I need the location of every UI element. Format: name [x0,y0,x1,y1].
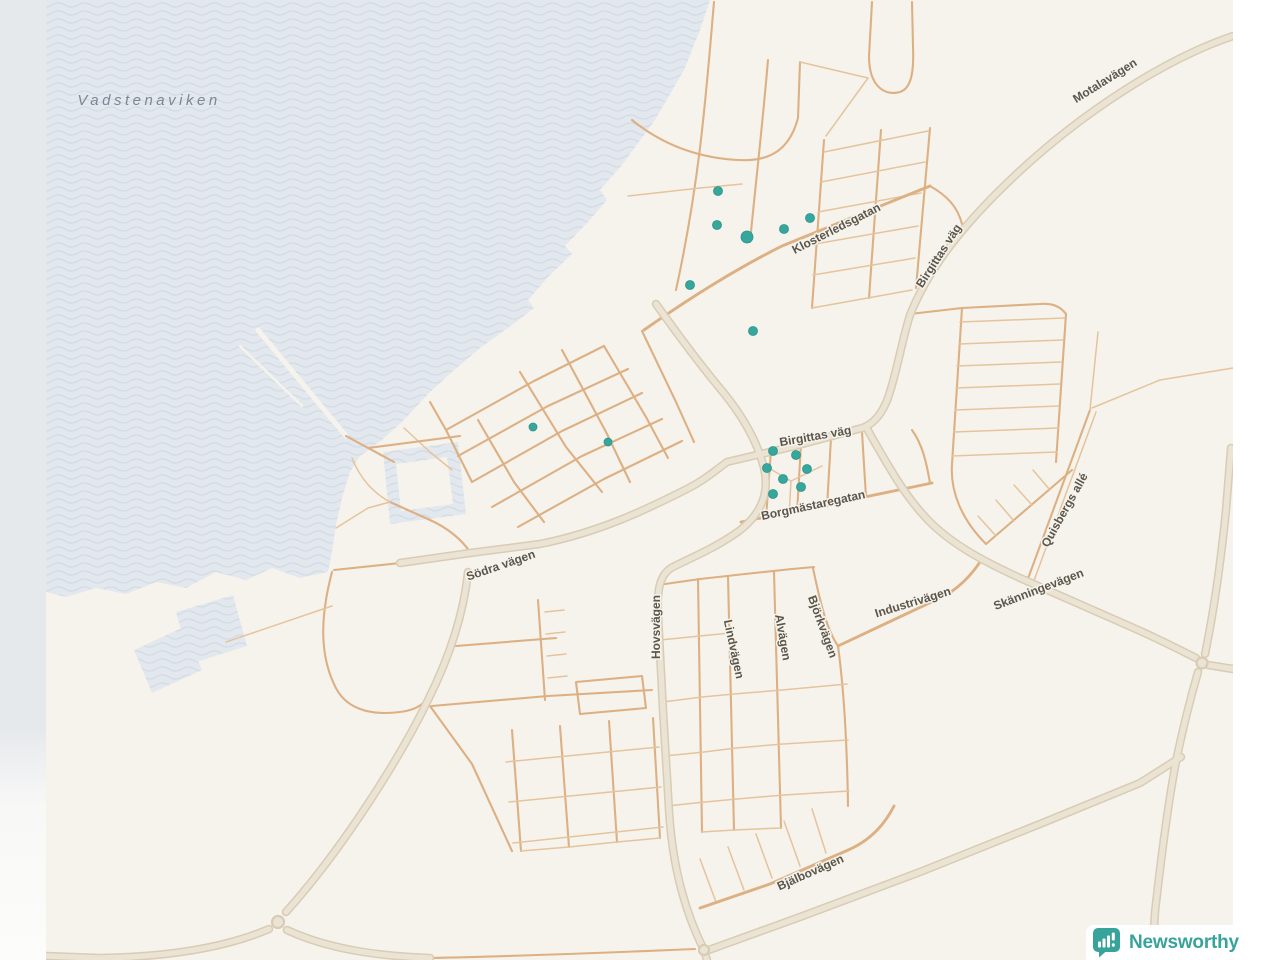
map-marker[interactable] [686,281,695,290]
roundabout-east [1197,658,1208,669]
map-edge-left [0,0,46,960]
map-marker[interactable] [741,231,753,243]
map-marker[interactable] [797,483,806,492]
map-marker[interactable] [803,465,812,474]
map-marker[interactable] [769,447,778,456]
map-marker[interactable] [529,423,537,431]
map-edge-right [1233,0,1280,960]
map-marker[interactable] [780,225,789,234]
map-marker[interactable] [792,451,801,460]
castle-island [396,457,453,511]
map-marker[interactable] [604,438,612,446]
map-marker[interactable] [763,464,772,473]
map-marker[interactable] [714,187,723,196]
map-marker[interactable] [806,214,815,223]
map-canvas[interactable]: Vadstenaviken Klosterledsgatan Motalaväg… [0,0,1280,960]
map-marker[interactable] [769,490,778,499]
water-body-label: Vadstenaviken [77,92,220,109]
attribution-card[interactable]: Newsworthy [1086,925,1280,960]
newsworthy-logo-icon [1092,927,1122,958]
map-screenshot: Vadstenaviken Klosterledsgatan Motalaväg… [0,0,1280,960]
map-marker[interactable] [779,475,788,484]
roundabout-south [699,945,709,955]
street-label-hovsvagen: Hovsvägen [649,595,663,659]
brand-name: Newsworthy [1129,932,1239,954]
map-marker[interactable] [749,327,758,336]
map-marker[interactable] [713,221,722,230]
roundabout-south-west [272,916,284,928]
